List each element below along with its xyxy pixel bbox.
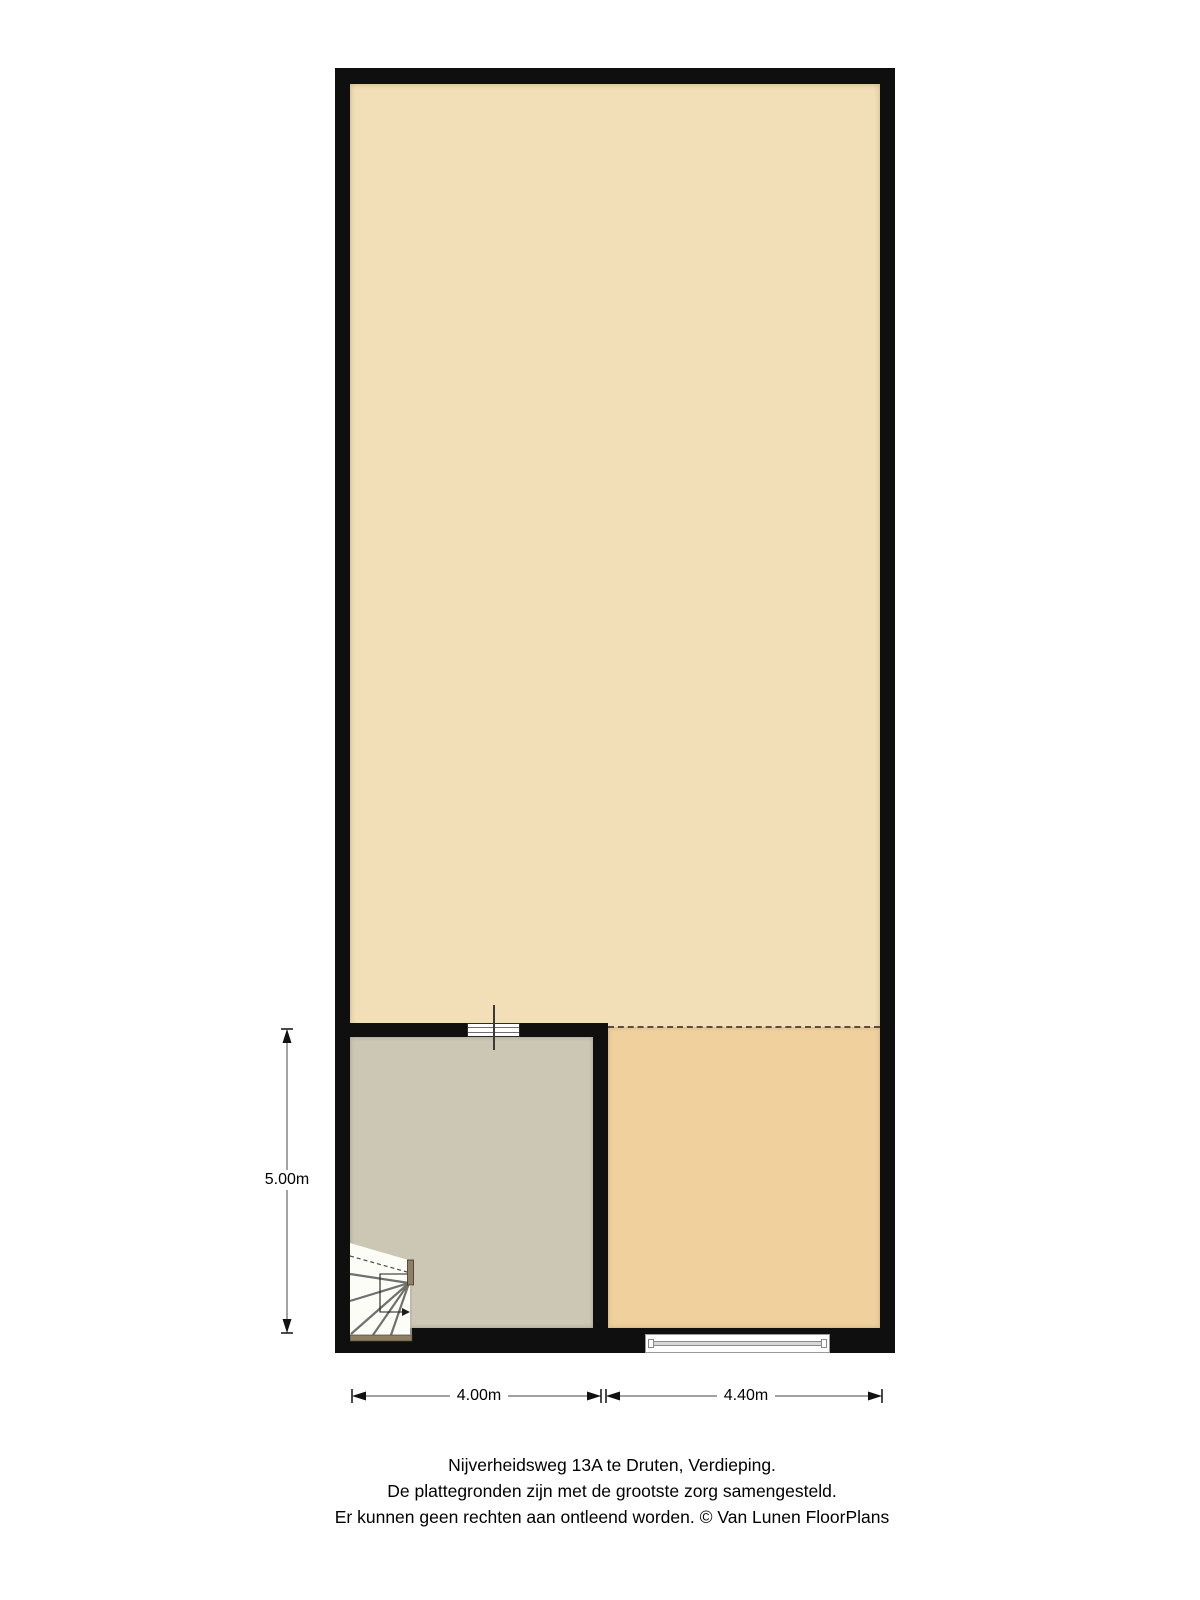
dimension-label-bottom-left: 4.00m xyxy=(450,1386,508,1406)
window-center-mark xyxy=(493,1005,495,1050)
caption-disclaimer-2: Er kunnen geen rechten aan ontleend word… xyxy=(12,1504,1200,1530)
floorplan-canvas: 5.00m 4.00m 4.40m Nijverheidsweg 13A te … xyxy=(0,0,1200,1600)
stair-newel-post xyxy=(408,1260,414,1285)
area-divider-dashed-line xyxy=(608,1026,880,1028)
caption-disclaimer-1: De plattegronden zijn met de grootste zo… xyxy=(12,1478,1200,1504)
room-open-area xyxy=(608,1027,880,1328)
dimension-label-bottom-right: 4.40m xyxy=(717,1386,775,1406)
caption: Nijverheidsweg 13A te Druten, Verdieping… xyxy=(12,1452,1200,1530)
stair-bottom-edge xyxy=(350,1335,412,1341)
staircase-icon xyxy=(350,1243,414,1342)
window-glass-band xyxy=(653,1341,822,1346)
caption-address: Nijverheidsweg 13A te Druten, Verdieping… xyxy=(12,1452,1200,1478)
dimension-label-height: 5.00m xyxy=(260,1170,314,1190)
window-end-cap xyxy=(821,1339,827,1348)
exterior-window-icon xyxy=(645,1334,830,1353)
interior-wall-vertical xyxy=(593,1023,608,1353)
window-end-cap xyxy=(648,1339,654,1348)
